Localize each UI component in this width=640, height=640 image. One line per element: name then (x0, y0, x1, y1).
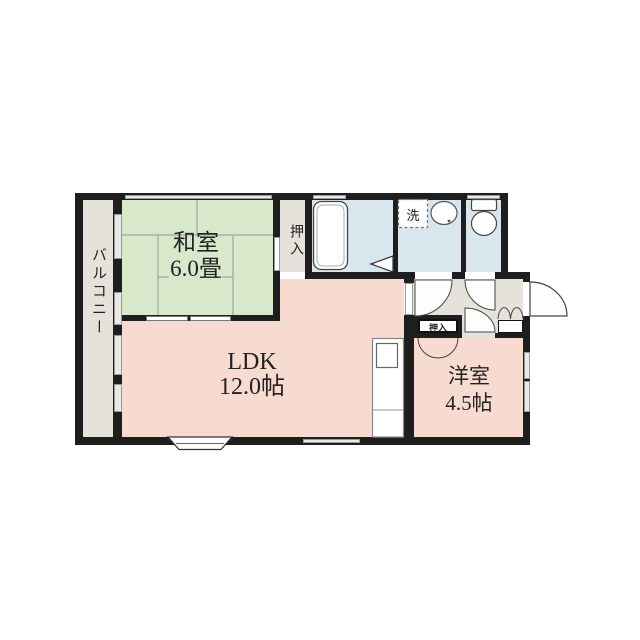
wall (495, 272, 508, 279)
laundry-label: 洗 (398, 205, 428, 224)
shoe-cabinet (498, 320, 523, 333)
wall (458, 315, 462, 338)
closet-youshitsu-label: 押入 (418, 321, 458, 334)
window-balcony-ldk (114, 335, 122, 375)
washitsu-size: 6.0畳 (136, 256, 256, 282)
wall (305, 272, 415, 279)
window-bath-top (313, 195, 346, 199)
wall (461, 200, 466, 272)
window-toilet-top (467, 195, 500, 199)
toilet-room-floor (466, 200, 501, 272)
washitsu-label: 和室 6.0畳 (136, 230, 256, 282)
wall (75, 193, 83, 445)
window-washitsu-top (125, 195, 272, 199)
sliding-door-panel (190, 316, 231, 321)
wall (501, 193, 508, 279)
closet-main-door (274, 237, 280, 271)
ldk-label: LDK 12.0帖 (182, 350, 322, 400)
ldk-name: LDK (182, 350, 322, 375)
youshitsu-name: 洋室 (409, 363, 529, 390)
window-balcony-ldk (114, 384, 122, 412)
window-balcony-washitsu (114, 214, 122, 259)
youshitsu-size: 4.5帖 (409, 390, 529, 417)
washitsu-name: 和室 (136, 230, 256, 256)
ldk-hall-door-panel (405, 283, 413, 315)
entrance-door-arc (530, 282, 567, 316)
floorplan-canvas: 和室 6.0畳 LDK 12.0帖 洋室 4.5帖 バルコニー 押入 洗 押入 (0, 0, 640, 640)
youshitsu-label: 洋室 4.5帖 (409, 363, 529, 417)
balcony-label: バルコニー (88, 247, 109, 387)
wall (305, 200, 312, 279)
wall (452, 272, 465, 279)
room-ldk-upper (280, 279, 404, 321)
ldk-size: 12.0帖 (182, 375, 322, 400)
wall (495, 333, 523, 338)
sliding-door-panel (146, 316, 188, 321)
wall (523, 272, 530, 282)
closet-main-label: 押入 (285, 224, 305, 274)
bathroom-floor (312, 200, 393, 272)
window-balcony-ldk (114, 292, 122, 325)
window-ldk-bottom (303, 439, 360, 443)
